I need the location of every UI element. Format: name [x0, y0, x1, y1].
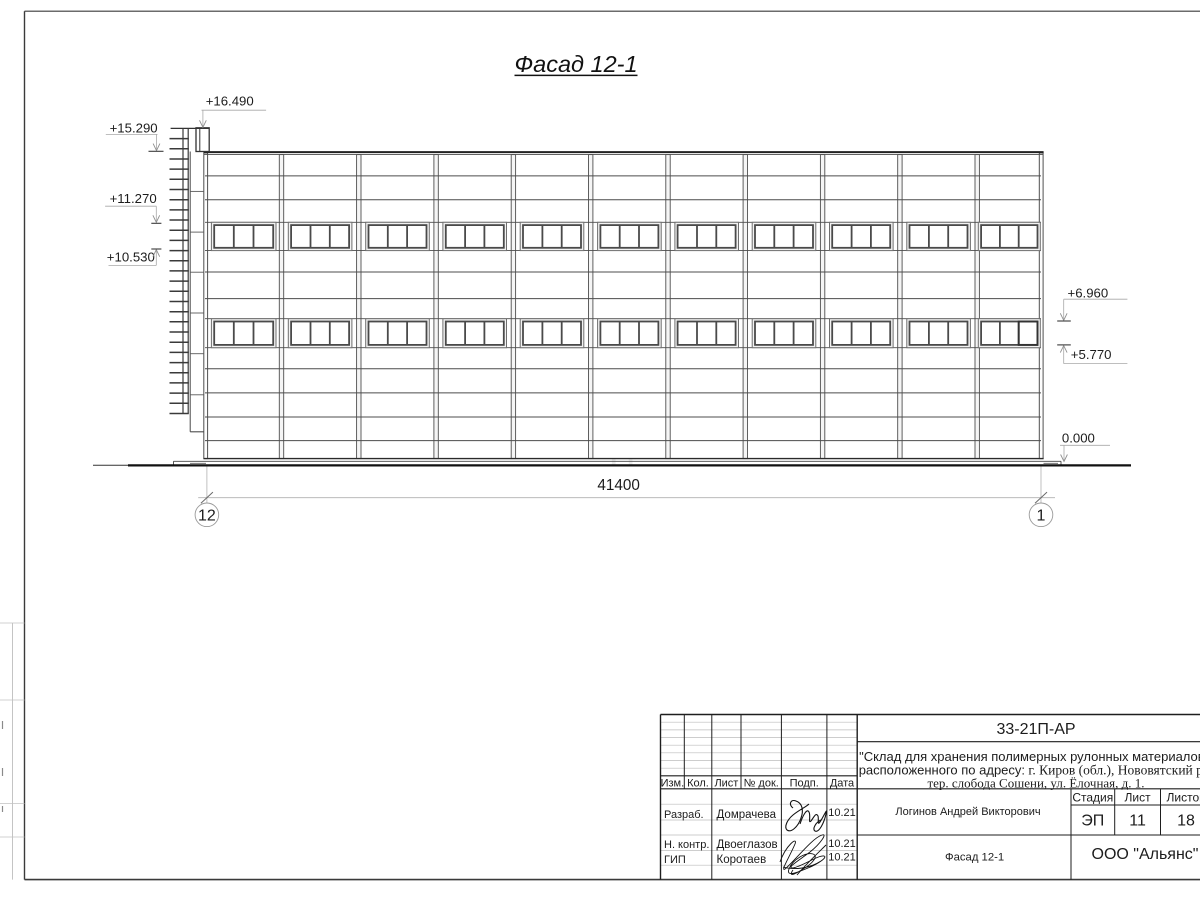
svg-text:ООО "Альянс": ООО "Альянс" — [1092, 846, 1199, 863]
svg-text:+16.490: +16.490 — [206, 93, 254, 108]
svg-text:Коротаев: Коротаев — [717, 854, 767, 866]
svg-text:+6.960: +6.960 — [1068, 286, 1109, 301]
svg-text:Двоеглазов: Двоеглазов — [717, 839, 778, 851]
svg-text:10.21: 10.21 — [828, 807, 856, 819]
svg-text:Дата: Дата — [830, 778, 855, 790]
svg-text:Изм.: Изм. — [661, 778, 685, 790]
svg-text:Лист: Лист — [1125, 790, 1152, 804]
svg-text:Фасад 12-1: Фасад 12-1 — [514, 51, 637, 77]
svg-text:18: 18 — [1177, 812, 1195, 829]
svg-text:Подп.: Подп. — [790, 778, 819, 790]
svg-text:Домрачева: Домрачева — [717, 809, 777, 821]
svg-text:ГИП: ГИП — [664, 854, 686, 866]
svg-text:№ док.: № док. — [744, 778, 779, 790]
svg-text:Стадия: Стадия — [1072, 790, 1113, 804]
svg-text:Кол.: Кол. — [687, 778, 709, 790]
svg-text:0.000: 0.000 — [1062, 431, 1095, 446]
svg-text:Логинов Андрей Викторович: Логинов Андрей Викторович — [895, 806, 1040, 818]
svg-text:33-21П-АР: 33-21П-АР — [996, 721, 1075, 738]
svg-text:Листов: Листов — [1167, 790, 1200, 804]
svg-text:тер. слобода Сошени, ул. Ёлочн: тер. слобода Сошени, ул. Ёлочная, д. 1. — [927, 775, 1144, 790]
svg-text:10.21: 10.21 — [828, 838, 856, 850]
svg-text:Н. контр.: Н. контр. — [664, 839, 709, 851]
svg-text:11: 11 — [1129, 812, 1146, 829]
svg-text:1: 1 — [1037, 508, 1046, 525]
svg-text:ЭП: ЭП — [1081, 812, 1104, 829]
svg-text:+10.530: +10.530 — [107, 250, 155, 265]
svg-text:12: 12 — [198, 508, 216, 525]
svg-text:+11.270: +11.270 — [110, 191, 157, 206]
svg-text:Лист: Лист — [714, 778, 738, 790]
svg-text:10.21: 10.21 — [828, 851, 856, 863]
svg-text:Разраб.: Разраб. — [664, 809, 704, 821]
svg-text:+5.770: +5.770 — [1071, 347, 1112, 362]
svg-text:+15.290: +15.290 — [110, 120, 158, 135]
svg-text:Фасад 12-1: Фасад 12-1 — [945, 852, 1004, 864]
svg-text:41400: 41400 — [597, 477, 640, 494]
